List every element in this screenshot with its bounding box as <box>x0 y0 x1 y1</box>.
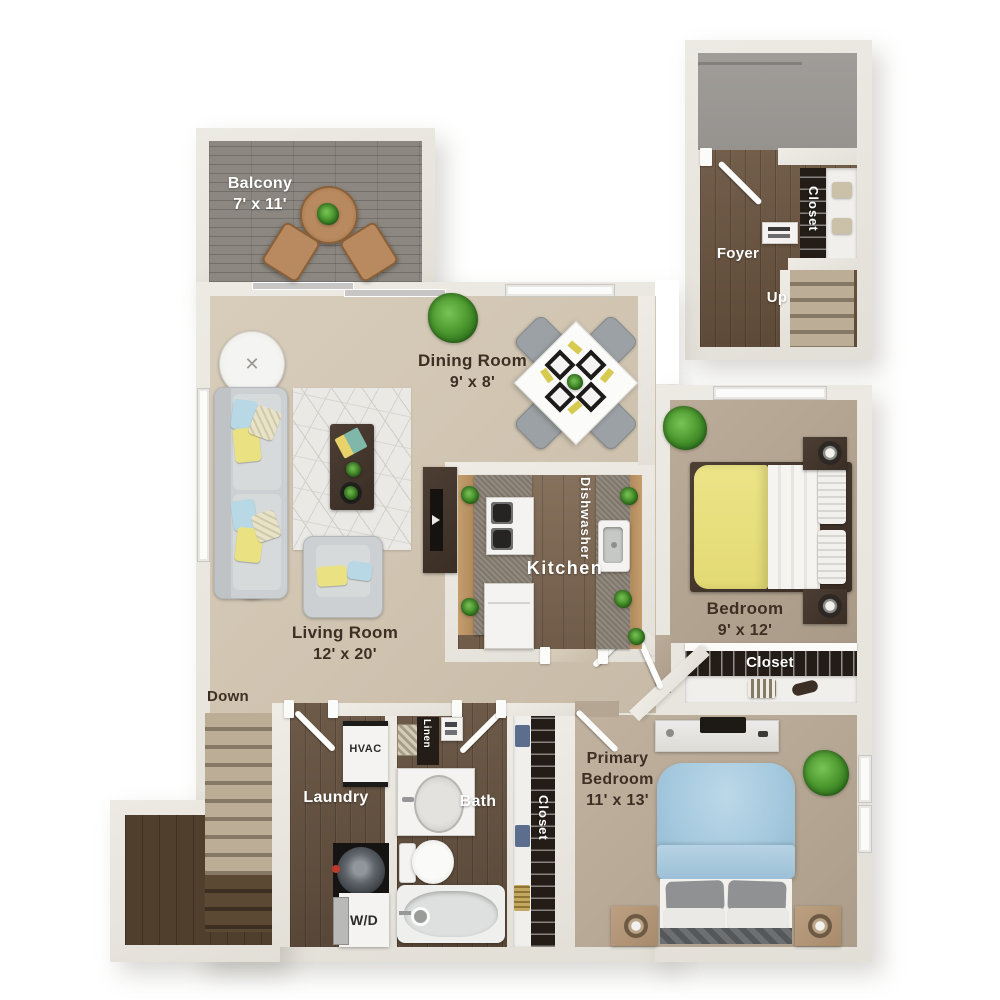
foyer-closet-basket-2 <box>832 218 852 234</box>
bedroom-window-top <box>713 386 827 400</box>
living-room-name: Living Room <box>275 622 415 644</box>
kitchen-label: Kitchen <box>505 557 625 581</box>
post-laundry-2 <box>328 700 338 718</box>
counter-plant-4 <box>614 590 632 608</box>
sliding-door-panel-1 <box>252 282 354 290</box>
armchair-pillow-yellow <box>316 565 347 587</box>
entry-porch <box>698 53 857 150</box>
primary-lamp-right <box>808 914 832 938</box>
balcony-name: Balcony <box>200 173 320 194</box>
bath-shelf-top <box>441 717 463 741</box>
fridge-divider <box>488 602 530 604</box>
foyer-closet-bottom-wall <box>788 258 857 270</box>
bedroom-pillow-1 <box>818 468 846 524</box>
exterior-gap <box>655 280 679 384</box>
washer-dryer-label: W/D <box>339 911 389 929</box>
vanity-faucet <box>402 797 414 802</box>
bedroom-closet-rod-track <box>685 643 857 651</box>
dining-plant <box>428 293 478 343</box>
bath-closet-wall <box>507 703 513 947</box>
closet-basket-striped <box>748 679 776 698</box>
shelf-item-2 <box>445 730 457 735</box>
living-window-left <box>197 388 210 562</box>
counter-plant-1 <box>461 486 479 504</box>
hall-top-wall-seg2 <box>500 703 576 716</box>
toilet-bowl <box>412 840 454 884</box>
balcony-dims: 7' x 11' <box>200 194 320 215</box>
balcony-table-plant <box>317 203 339 225</box>
burner-panel-1 <box>491 502 513 524</box>
dresser-item-1 <box>666 729 674 737</box>
hall-top-wall-seg1 <box>332 703 458 716</box>
primary-bed-fold <box>657 845 795 879</box>
stove <box>486 497 534 555</box>
dining-room-label: Dining Room 9' x 8' <box>400 350 545 394</box>
dishwasher-label: Dishwasher <box>578 477 593 577</box>
bedroom-lamp-top <box>818 441 842 465</box>
living-room-dims: 12' x 20' <box>275 644 415 665</box>
dining-room-name: Dining Room <box>400 350 545 372</box>
dresser-item-2 <box>758 731 768 737</box>
primary-dims: 11' x 13' <box>555 790 680 811</box>
primary-window-right-1 <box>858 755 872 803</box>
post-bath-1 <box>452 700 462 718</box>
bedroom-name: Bedroom <box>675 598 815 620</box>
dining-room-dims: 9' x 8' <box>400 372 545 393</box>
primary-closet-item-blue-2 <box>515 825 530 847</box>
primary-foot-blanket <box>660 928 792 944</box>
stairs-up-treads <box>790 270 854 347</box>
primary-closet-item-blue-1 <box>515 725 530 747</box>
bedroom-bed-sheet <box>768 465 820 589</box>
laundry-label: Laundry <box>295 787 377 808</box>
stairs-up-left-wall <box>780 270 790 347</box>
post-laundry-1 <box>284 700 294 718</box>
coffee-table-plant-1 <box>346 462 361 477</box>
foyer-label: Foyer <box>703 244 773 264</box>
bedroom-dims: 9' x 12' <box>675 620 815 641</box>
foyer-top-wall-right <box>778 148 857 165</box>
bedroom-lamp-bottom <box>818 594 842 618</box>
refrigerator <box>484 583 534 649</box>
kitchen-door-opening <box>548 649 600 662</box>
counter-plant-3 <box>620 487 638 505</box>
primary-closet-label: Closet <box>536 795 551 875</box>
coffee-table <box>330 424 374 510</box>
console-item <box>768 227 790 231</box>
coffee-table-book <box>334 427 367 459</box>
stairs-down-lower-flight <box>205 875 272 932</box>
tv-console <box>423 467 457 573</box>
water-heater <box>337 847 385 895</box>
balcony-sliding-door <box>252 281 444 297</box>
foyer-closet-label: Closet <box>806 186 821 250</box>
foyer-console-table <box>762 222 798 244</box>
bathtub-faucet <box>399 911 411 915</box>
balcony-label: Balcony 7' x 11' <box>200 173 320 215</box>
sliding-door-panel-2 <box>344 289 446 297</box>
up-label: Up <box>760 288 794 308</box>
water-heater-valve <box>332 865 340 873</box>
bath-label: Bath <box>448 791 508 812</box>
post-kitchen-1 <box>540 647 550 664</box>
primary-closet-basket <box>514 885 530 911</box>
porch-step-edge <box>698 62 802 65</box>
dining-centerpiece <box>567 374 583 390</box>
down-label: Down <box>193 687 263 707</box>
primary-lamp-left <box>624 914 648 938</box>
sofa-back <box>215 388 231 598</box>
kitchen-name: Kitchen <box>505 557 625 581</box>
counter-plant-2 <box>461 598 479 616</box>
post-bath-2 <box>496 700 506 718</box>
bedroom-plant <box>663 406 707 450</box>
armchair-pillow-blue <box>347 560 373 581</box>
bedroom-bed-blanket-yellow <box>694 465 768 589</box>
closet-primary-wall <box>555 703 575 947</box>
foyer-closet-basket-1 <box>832 182 852 198</box>
bathtub <box>397 885 505 943</box>
primary-plant <box>803 750 849 796</box>
living-room-label: Living Room 12' x 20' <box>275 622 415 666</box>
hvac-label: HVAC <box>343 742 388 757</box>
primary-bedroom-label: Primary Bedroom 11' x 13' <box>555 748 680 811</box>
primary-name-line1: Primary <box>555 748 680 769</box>
linen-label: Linen <box>421 719 432 763</box>
dining-right-wall <box>638 296 655 465</box>
linen-basket <box>397 724 418 756</box>
sink-faucet <box>611 542 617 548</box>
post-kitchen-2 <box>598 647 608 664</box>
laundry-left-wall <box>272 703 290 947</box>
bedroom-label: Bedroom 9' x 12' <box>675 598 815 642</box>
bedroom-closet-label: Closet <box>715 653 825 673</box>
bathtub-drain <box>411 907 430 926</box>
burner-panel-2 <box>491 528 513 550</box>
floor-plan: ✕ ✕ <box>0 0 1000 1000</box>
coffee-table-plant-2 <box>344 486 358 500</box>
console-item-2 <box>768 234 790 238</box>
bedroom-pillow-2 <box>818 530 846 584</box>
primary-pillow-white-2 <box>728 908 788 930</box>
post-foyer-door <box>700 148 712 166</box>
shelf-item <box>445 722 457 727</box>
primary-name-line2: Bedroom <box>555 769 680 790</box>
stairs-down-treads <box>205 713 272 875</box>
dining-window-top <box>505 284 615 297</box>
tv-play-icon <box>432 515 440 525</box>
primary-window-right-2 <box>858 805 872 853</box>
primary-tv <box>700 717 746 733</box>
primary-pillow-white-1 <box>664 908 724 930</box>
hall-plant-kitchen-corner <box>628 628 645 645</box>
